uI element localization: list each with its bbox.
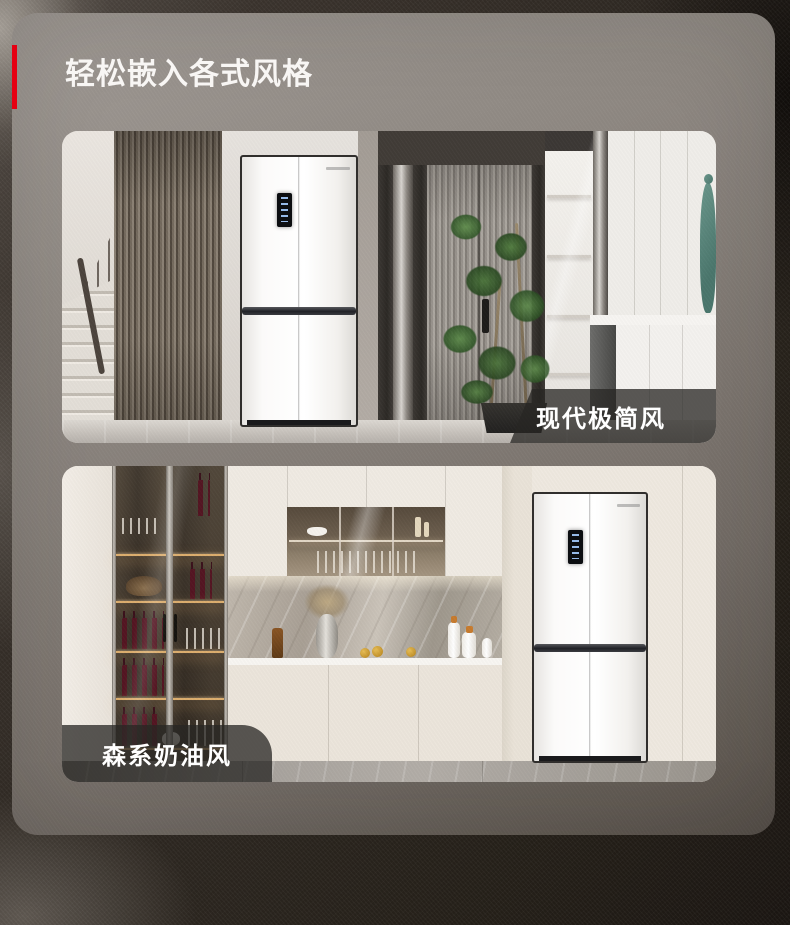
decor-bottle — [272, 628, 283, 658]
refrigerator-door-seam — [589, 494, 591, 761]
teal-statue — [700, 183, 716, 313]
refrigerator-brand-mark — [326, 167, 350, 170]
cabinet-seam — [634, 131, 635, 319]
refrigerator-handle-bar — [242, 307, 355, 315]
cabinet-seam — [660, 131, 661, 319]
cabinet-seam — [682, 466, 683, 761]
style-label-modern-minimalist: 现代极简风 — [510, 389, 716, 443]
door-frame-mid — [413, 131, 427, 422]
page-title: 轻松嵌入各式风格 — [65, 57, 313, 93]
refrigerator-base — [539, 756, 641, 761]
white-bottle — [448, 622, 460, 658]
refrigerator-display-panel — [277, 193, 292, 227]
door-top-beam — [378, 131, 545, 165]
door-frame-left — [378, 131, 393, 422]
fruit — [406, 647, 416, 657]
refrigerator-door-seam — [298, 157, 300, 425]
cabinet-seam — [445, 466, 446, 576]
photo-modern-minimalist: 现代极简风 — [62, 131, 716, 443]
style-label-forest-cream: 森系奶油风 — [62, 725, 272, 782]
refrigerator-display-panel — [568, 530, 583, 564]
refrigerator — [240, 155, 358, 427]
left-wall — [62, 466, 112, 761]
fruit — [360, 648, 370, 658]
white-jar — [462, 632, 476, 658]
marble-backsplash — [228, 576, 502, 658]
photo-forest-cream: 森系奶油风 — [62, 466, 716, 782]
cabinet-seam — [418, 665, 419, 761]
display-niche — [287, 507, 445, 580]
cabinet-seam — [366, 466, 367, 507]
tall-cabinet-side — [502, 466, 532, 761]
title-accent-bar — [12, 45, 17, 109]
style-label-text: 现代极简风 — [536, 399, 666, 434]
tile-grout-line — [482, 761, 483, 782]
fruit — [372, 646, 383, 657]
glass-reflection — [287, 507, 445, 580]
refrigerator-base — [247, 420, 351, 425]
refrigerator-handle-bar — [534, 644, 645, 652]
bottom-white-strip — [0, 925, 790, 936]
content-panel: 轻松嵌入各式风格 — [12, 13, 775, 835]
glass-reflection — [112, 466, 228, 766]
wine-display-cabinet — [112, 466, 228, 766]
potted-plant-foliage — [430, 199, 562, 413]
promo-page: 轻松嵌入各式风格 — [0, 0, 790, 936]
white-jar — [482, 638, 492, 658]
chrome-trim — [393, 165, 413, 422]
refrigerator — [532, 492, 648, 763]
silver-vase — [316, 614, 338, 658]
jar-lid — [466, 626, 473, 633]
refrigerator-brand-mark — [617, 504, 640, 507]
bottle-cap — [451, 616, 457, 623]
wood-slat-wall — [114, 131, 222, 422]
cabinet-seam — [687, 131, 688, 319]
style-label-text: 森系奶油风 — [102, 736, 232, 771]
gray-wall — [358, 131, 378, 422]
cabinet-seam — [328, 665, 329, 761]
